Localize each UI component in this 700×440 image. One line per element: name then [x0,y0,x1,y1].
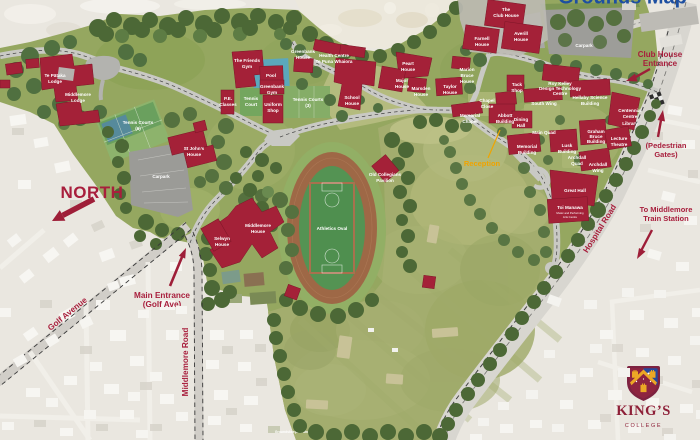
svg-text:Middlemore Road: Middlemore Road [181,328,190,397]
svg-text:Old Collegians: Old Collegians [369,172,402,177]
svg-text:Archdall: Archdall [568,155,586,160]
svg-text:Health Centre: Health Centre [319,53,349,58]
svg-text:Club House: Club House [638,50,683,59]
svg-text:Centre: Centre [553,91,568,96]
svg-text:Tennis Courts: Tennis Courts [293,97,324,102]
svg-text:Lodge: Lodge [48,79,62,84]
svg-text:Toi Manawa: Toi Manawa [557,205,583,210]
svg-text:Wing: Wing [592,168,603,173]
svg-text:Abbott: Abbott [498,113,513,118]
svg-text:Lecture: Lecture [611,136,628,141]
svg-text:Pool: Pool [266,73,276,78]
svg-text:Memorial: Memorial [517,144,537,149]
svg-text:(Pedestrian: (Pedestrian [646,141,687,150]
svg-text:Memorial: Memorial [460,113,480,118]
svg-text:Greenbank: Greenbank [291,49,315,54]
svg-text:Grounds Map: Grounds Map [558,0,687,9]
svg-text:House: House [414,92,428,97]
svg-text:Centre: Centre [623,114,638,119]
svg-text:House: House [251,229,265,234]
svg-text:(3): (3) [305,103,311,108]
svg-text:Centennial: Centennial [618,108,641,113]
svg-text:House: House [215,242,229,247]
svg-text:School: School [344,95,359,100]
svg-text:Archdall: Archdall [589,162,607,167]
svg-text:(6): (6) [135,126,141,131]
svg-text:Selwyn: Selwyn [214,236,230,241]
svg-text:Gates): Gates) [654,150,678,159]
svg-text:South Wing: South Wing [531,101,557,106]
svg-text:Building: Building [518,150,537,155]
svg-text:Hall: Hall [517,123,525,128]
svg-text:Farnell: Farnell [474,36,489,41]
svg-text:Shop: Shop [511,88,523,93]
svg-text:Great Hall: Great Hall [564,188,586,193]
svg-text:Theatre: Theatre [611,142,628,147]
svg-text:Taylor: Taylor [443,84,457,89]
svg-text:Chapel: Chapel [479,98,494,103]
svg-text:Tennis Courts: Tennis Courts [123,120,154,125]
svg-text:Library: Library [622,121,638,126]
svg-text:Building: Building [496,119,515,124]
svg-text:Bruce: Bruce [460,73,473,78]
svg-text:House: House [296,55,310,60]
svg-text:Groundskeepers Shed: Groundskeepers Shed [275,430,311,434]
svg-text:To Middlemore: To Middlemore [640,205,693,214]
svg-text:Gym: Gym [242,64,252,69]
svg-text:Pavilion: Pavilion [376,178,394,183]
svg-text:Lodge: Lodge [71,98,85,103]
svg-text:Te Puna Whaiora: Te Puna Whaiora [316,59,353,64]
svg-text:P.E.: P.E. [224,96,232,101]
svg-text:Club House: Club House [493,13,519,18]
svg-text:COLLEGE: COLLEGE [625,423,662,429]
svg-text:Peart: Peart [402,61,414,66]
svg-text:Court: Court [245,102,258,107]
svg-text:Gym: Gym [267,90,277,95]
svg-text:Tack: Tack [512,82,523,87]
svg-text:Entrance: Entrance [643,59,678,68]
svg-text:St John’s: St John’s [184,146,205,151]
svg-text:House: House [443,90,457,95]
svg-text:Athletics Oval: Athletics Oval [317,226,348,231]
svg-text:Carpark: Carpark [152,174,170,179]
svg-text:Hellaby Science: Hellaby Science [573,95,608,100]
svg-text:Chapel: Chapel [462,119,477,124]
svg-text:Close: Close [481,104,494,109]
svg-text:House: House [187,152,201,157]
svg-text:Te Pātaka: Te Pātaka [44,73,66,78]
svg-text:House: House [395,84,409,89]
svg-text:The: The [502,7,511,12]
svg-text:Middlemore: Middlemore [245,223,271,228]
svg-text:House: House [401,67,415,72]
svg-text:House: House [514,37,528,42]
svg-text:Building: Building [581,101,600,106]
svg-text:Arts Centre: Arts Centre [563,215,578,219]
svg-text:Carpark: Carpark [575,43,593,48]
svg-text:Dining: Dining [514,117,528,122]
svg-text:Classes: Classes [219,102,237,107]
svg-text:House: House [460,79,474,84]
svg-text:(Golf Ave): (Golf Ave) [143,300,182,309]
svg-text:KING’S: KING’S [616,403,671,419]
svg-text:Averill: Averill [514,31,528,36]
svg-text:The Friends: The Friends [234,58,260,63]
svg-text:Reception: Reception [464,159,501,168]
svg-text:House: House [475,42,489,47]
svg-text:Building: Building [558,149,577,154]
svg-text:Marion: Marion [459,67,474,72]
svg-text:Tennis: Tennis [244,96,259,101]
svg-text:Middlemore: Middlemore [65,92,91,97]
svg-text:Train Station: Train Station [643,214,689,223]
svg-text:Shop: Shop [267,108,279,113]
svg-text:Building: Building [587,139,606,144]
svg-text:Quad: Quad [571,161,583,166]
svg-text:Greenbank: Greenbank [260,84,284,89]
svg-text:Uniform: Uniform [264,102,282,107]
svg-text:Main Entrance: Main Entrance [134,291,190,300]
svg-text:Lusk: Lusk [562,143,573,148]
svg-text:House: House [345,101,359,106]
svg-text:Main Quad: Main Quad [532,130,556,135]
svg-text:Major: Major [396,78,408,83]
svg-text:Marsden: Marsden [412,86,431,91]
